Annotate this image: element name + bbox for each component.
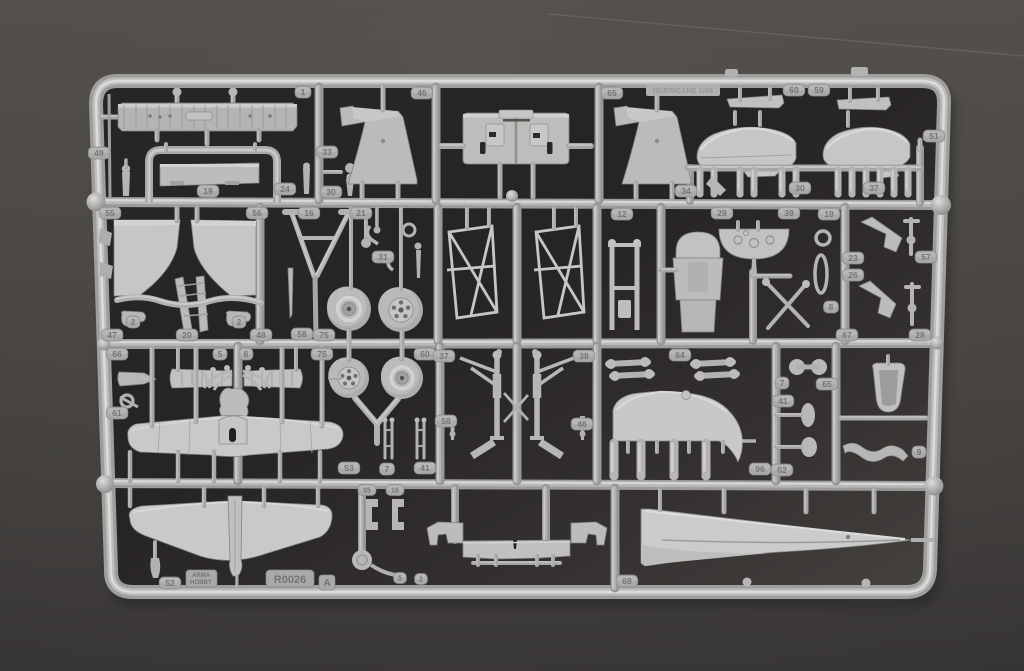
svg-text:60: 60 xyxy=(420,349,430,359)
svg-text:5: 5 xyxy=(398,576,402,583)
svg-text:23: 23 xyxy=(848,253,858,263)
svg-text:75: 75 xyxy=(317,349,327,359)
svg-text:20: 20 xyxy=(182,330,192,340)
svg-text:28: 28 xyxy=(915,330,925,340)
svg-text:7: 7 xyxy=(780,378,785,388)
svg-text:02: 02 xyxy=(777,465,787,475)
svg-text:38: 38 xyxy=(579,351,589,361)
svg-text:2: 2 xyxy=(419,577,423,584)
svg-text:19: 19 xyxy=(824,209,834,219)
svg-text:16: 16 xyxy=(391,488,399,495)
svg-text:51: 51 xyxy=(929,131,939,141)
svg-text:34: 34 xyxy=(681,186,691,196)
svg-text:21: 21 xyxy=(356,208,366,218)
svg-text:61: 61 xyxy=(112,408,122,418)
svg-text:33: 33 xyxy=(322,147,332,157)
svg-text:19: 19 xyxy=(203,186,213,196)
svg-text:R0026: R0026 xyxy=(274,574,306,586)
svg-text:59: 59 xyxy=(814,85,824,95)
svg-text:05: 05 xyxy=(363,488,371,495)
svg-text:49: 49 xyxy=(94,148,104,158)
svg-text:48: 48 xyxy=(256,330,266,340)
svg-text:16: 16 xyxy=(304,208,314,218)
svg-text:8: 8 xyxy=(829,302,834,312)
svg-text:65: 65 xyxy=(822,379,832,389)
svg-text:A: A xyxy=(323,578,330,589)
svg-text:53: 53 xyxy=(344,463,354,473)
svg-text:65: 65 xyxy=(607,88,617,98)
svg-text:ARMA: ARMA xyxy=(192,573,211,579)
svg-text:30: 30 xyxy=(326,187,336,197)
svg-text:41: 41 xyxy=(420,463,430,473)
svg-text:66: 66 xyxy=(112,349,122,359)
svg-text:46: 46 xyxy=(417,88,427,98)
svg-text:58: 58 xyxy=(297,329,307,339)
svg-text:37: 37 xyxy=(439,351,449,361)
svg-text:2: 2 xyxy=(131,318,136,327)
svg-text:55: 55 xyxy=(105,208,115,218)
svg-text:7: 7 xyxy=(385,464,390,474)
svg-text:12: 12 xyxy=(617,209,627,219)
svg-text:2: 2 xyxy=(237,318,242,327)
svg-text:75: 75 xyxy=(319,330,329,340)
svg-text:29: 29 xyxy=(717,208,727,218)
svg-text:52: 52 xyxy=(165,578,175,588)
svg-text:64: 64 xyxy=(675,350,685,360)
svg-text:41: 41 xyxy=(778,396,788,406)
svg-text:39: 39 xyxy=(784,208,794,218)
svg-text:30: 30 xyxy=(795,183,805,193)
svg-text:56: 56 xyxy=(252,208,262,218)
svg-text:9: 9 xyxy=(917,447,922,457)
svg-text:60: 60 xyxy=(789,85,799,95)
svg-text:HOBBY: HOBBY xyxy=(190,580,212,586)
svg-text:24: 24 xyxy=(280,184,290,194)
svg-text:57: 57 xyxy=(921,252,931,262)
svg-text:6: 6 xyxy=(244,349,249,359)
svg-text:46: 46 xyxy=(577,419,587,429)
svg-text:58: 58 xyxy=(441,416,451,426)
svg-text:5: 5 xyxy=(218,349,223,359)
svg-text:26: 26 xyxy=(848,270,858,280)
svg-text:68: 68 xyxy=(622,576,632,586)
svg-text:1: 1 xyxy=(301,87,306,97)
svg-text:37: 37 xyxy=(869,183,879,193)
svg-text:31: 31 xyxy=(378,252,388,262)
svg-text:47: 47 xyxy=(107,330,117,340)
svg-text:67: 67 xyxy=(842,330,852,340)
svg-text:96: 96 xyxy=(755,464,765,474)
svg-text:HURRICANE 1/48: HURRICANE 1/48 xyxy=(653,88,713,95)
